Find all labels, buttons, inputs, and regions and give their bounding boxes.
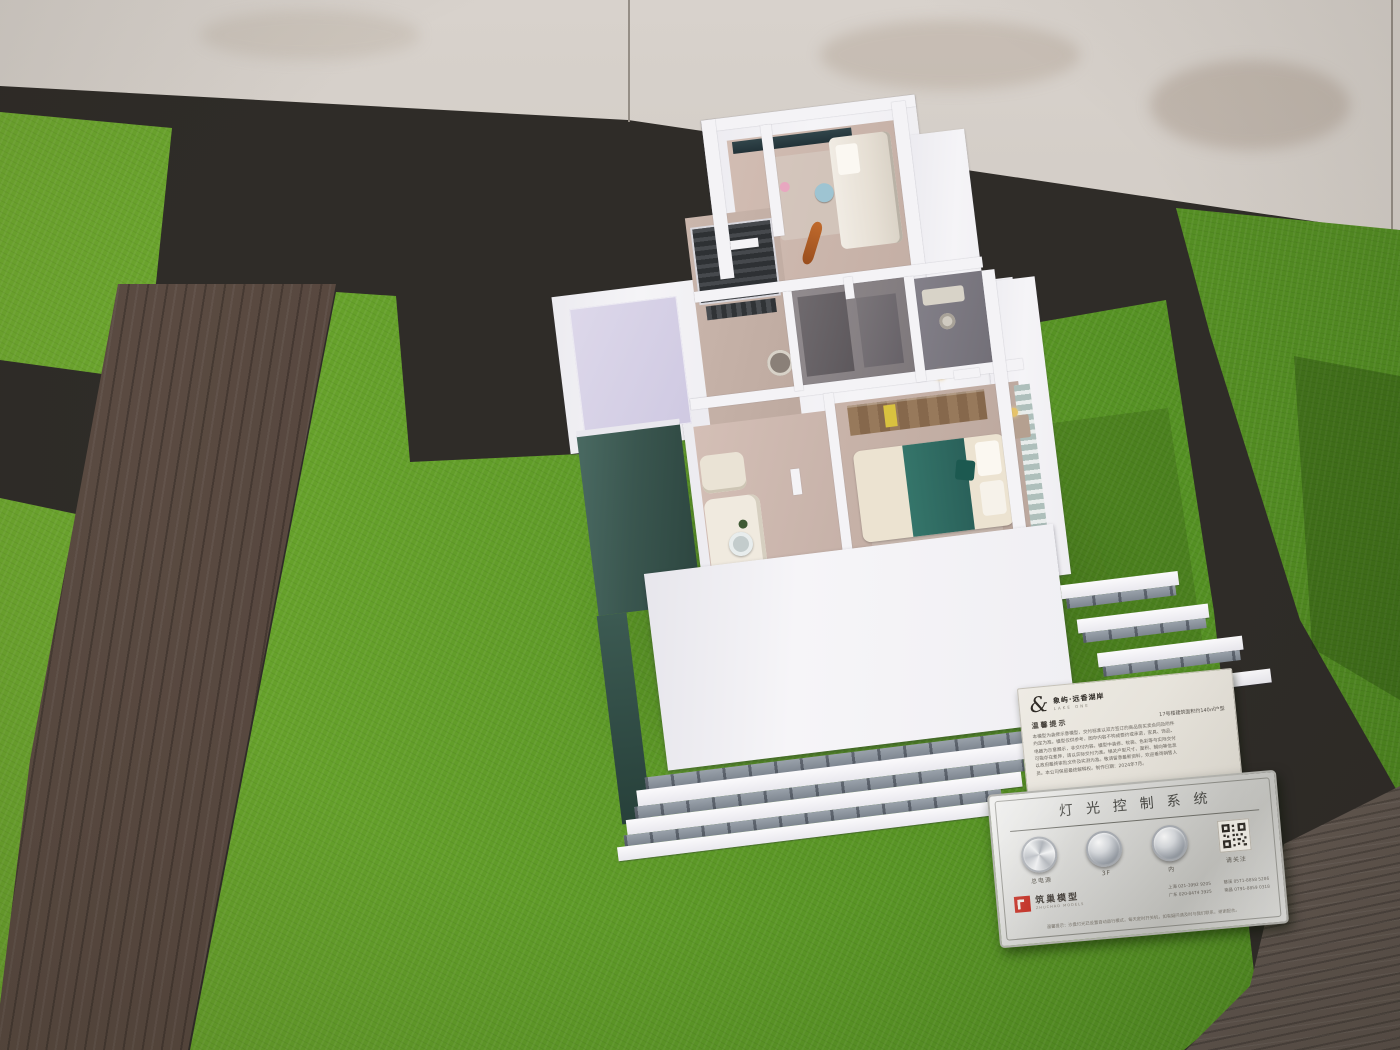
lighting-control-panel: 灯光控制系统 总电源 3F 内 [987,770,1289,949]
button-cell-3f: 3F [1074,828,1136,881]
pillow [979,480,1007,517]
qr-code-svg [1221,823,1247,849]
teal-cushion [955,459,976,481]
kids-pillow [835,143,860,175]
card-title: 温馨提示 [1031,718,1068,731]
button-label: 请关注 [1225,854,1247,865]
button-cell-main-power: 总电源 [1009,834,1071,887]
interior-light-button[interactable] [1150,824,1189,863]
button-label: 内 [1168,864,1176,874]
zhuchao-logo-icon [1014,896,1031,913]
closet-cabinet [797,291,854,376]
closet-cabinet-2 [856,293,904,367]
button-label: 总电源 [1031,875,1053,886]
photo-scale-model-display: { "colors": { "grass_green": "#5f9b28", … [0,0,1400,1050]
button-label: 3F [1102,869,1112,877]
wardrobe-accent [883,404,898,427]
brand-ampersand-icon: & [1029,694,1050,717]
button-cell-qr: 请关注 [1204,817,1266,870]
main-power-button[interactable] [1020,835,1059,874]
pillow [974,440,1002,477]
lavender-roof-panel [569,296,692,436]
floor-3f-button[interactable] [1085,829,1124,868]
qr-code-icon [1217,818,1252,853]
company-names: 筑巢模型 ZHUCHAO MODELS [1035,892,1085,909]
button-cell-interior: 内 [1139,823,1201,876]
lounge-chair [699,451,747,494]
wall-seam [1391,0,1393,232]
bed-throw-teal [902,438,975,537]
wall-stain [200,10,420,60]
